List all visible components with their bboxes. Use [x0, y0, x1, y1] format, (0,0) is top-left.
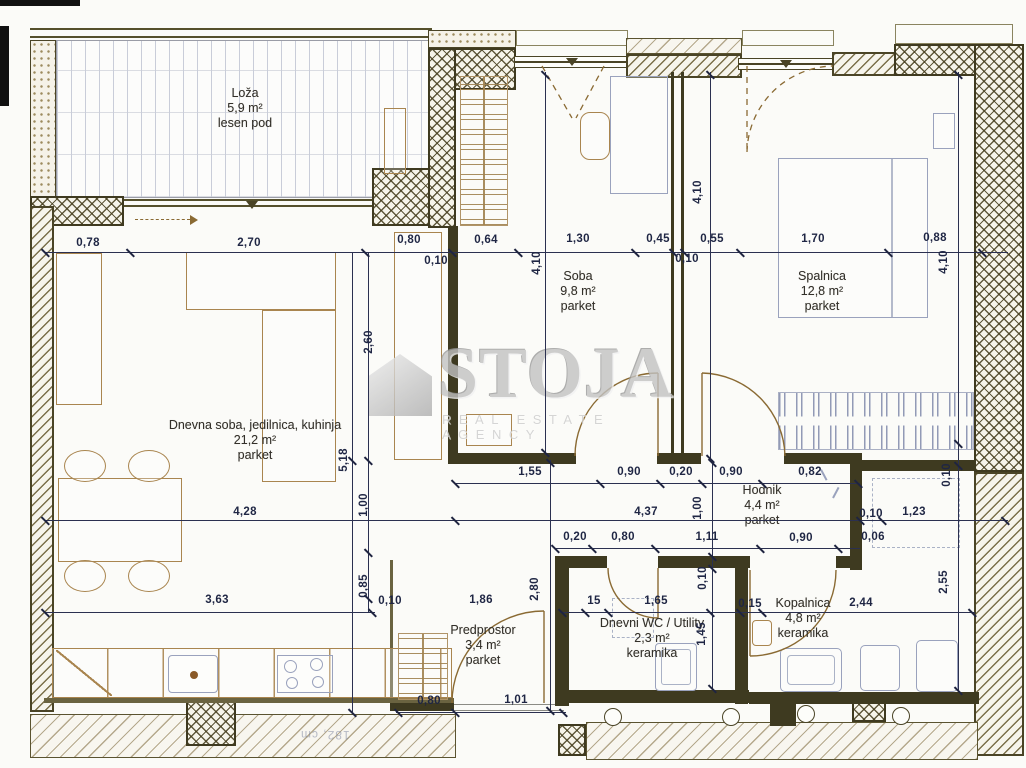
dimension-label: 0,82: [798, 466, 822, 478]
room-floor: parket: [560, 299, 595, 314]
dimension-label: 4,10: [531, 251, 543, 275]
dimension-label: 0,80: [397, 234, 421, 246]
room-floor: keramika: [600, 646, 704, 661]
dimension-label: 4,37: [634, 506, 658, 518]
dimension-label: 0,10: [859, 508, 883, 520]
room-name: Kopalnica: [776, 596, 831, 611]
dimension-line: [352, 252, 353, 712]
dimension-label: 0,06: [861, 531, 885, 543]
room-label-kopalnica: Kopalnica 4,8 m² keramika: [776, 596, 831, 641]
dimension-line: [560, 612, 975, 613]
dimension-label: 0,90: [617, 466, 641, 478]
house-icon: [368, 354, 432, 416]
room-floor: parket: [798, 299, 846, 314]
room-area: 2,3 m²: [600, 631, 704, 646]
dimension-label: 1,23: [902, 506, 926, 518]
room-name: Loža: [218, 86, 272, 101]
dimension-label: 2,55: [938, 570, 950, 594]
watermark-brand: STOJA: [438, 332, 674, 415]
dimension-label: 0,88: [923, 232, 947, 244]
room-name: Spalnica: [798, 269, 846, 284]
dimension-label: 1,11: [696, 531, 719, 543]
room-label-soba: Soba 9,8 m² parket: [560, 269, 595, 314]
room-floor: keramika: [776, 626, 831, 641]
dimension-label: 0,78: [76, 237, 100, 249]
dimension-line: [45, 252, 1008, 253]
watermark-tagline: REAL ESTATE AGENCY: [442, 412, 680, 442]
dimension-line: [45, 612, 375, 613]
balcony-door-swing-spalnica: [747, 66, 833, 152]
dimension-label: 4,10: [692, 180, 704, 204]
dimension-label: 1,86: [469, 594, 493, 606]
room-floor: parket: [450, 653, 515, 668]
dimension-label: 0,55: [700, 233, 724, 245]
dimension-line: [396, 712, 566, 713]
dimension-label: 15: [587, 595, 600, 607]
dimension-label: 3,63: [205, 594, 229, 606]
dimension-label: 1,45: [696, 622, 708, 646]
dimension-line: [550, 460, 551, 712]
room-label-loza: Loža 5,9 m² lesen pod: [218, 86, 272, 131]
dimension-line: [545, 72, 546, 455]
room-area: 12,8 m²: [798, 284, 846, 299]
dimension-label: 0,80: [611, 531, 635, 543]
dimension-label: 5,18: [338, 448, 350, 472]
dimension-label: 4,10: [938, 250, 950, 274]
dimension-label: 0,10: [378, 595, 402, 607]
room-area: 5,9 m²: [218, 101, 272, 116]
dimension-label: 1,65: [644, 595, 668, 607]
dimension-line: [455, 483, 860, 484]
dimension-label: 0,85: [358, 574, 370, 598]
dimension-label: 0,10: [675, 253, 699, 265]
room-name: Dnevni WC / Utility: [600, 616, 704, 631]
floor-plan: STOJA REAL ESTATE AGENCY Loža 5,9 m² les…: [0, 0, 1026, 768]
dimension-label: 1,55: [518, 466, 542, 478]
dimension-label: 0,45: [646, 233, 670, 245]
dimension-label: 1,01: [504, 694, 528, 706]
door-arc-wc: [608, 568, 658, 618]
room-name: Dnevna soba, jedilnica, kuhinja: [169, 418, 341, 433]
dimension-line: [555, 548, 860, 549]
room-floor: lesen pod: [218, 116, 272, 131]
dimension-label: 2,70: [237, 237, 261, 249]
dimension-line: [712, 460, 713, 690]
dimension-line: [710, 72, 711, 460]
room-name: Predprostor: [450, 623, 515, 638]
room-area: 3,4 m²: [450, 638, 515, 653]
room-label-wc: Dnevni WC / Utility 2,3 m² keramika: [600, 616, 704, 661]
dimension-label: 0,80: [417, 695, 441, 707]
room-label-dnevna: Dnevna soba, jedilnica, kuhinja 21,2 m² …: [169, 418, 341, 463]
room-area: 4,4 m²: [743, 498, 782, 513]
agency-watermark: STOJA REAL ESTATE AGENCY: [360, 346, 680, 442]
dimension-label: 0,90: [719, 466, 743, 478]
room-label-predprostor: Predprostor 3,4 m² parket: [450, 623, 515, 668]
dimension-line: [45, 520, 1008, 521]
dimension-label: 2,44: [849, 597, 873, 609]
dimension-label: 0,10: [697, 566, 709, 590]
dimension-line: [958, 72, 959, 692]
room-area: 4,8 m²: [776, 611, 831, 626]
room-label-spalnica: Spalnica 12,8 m² parket: [798, 269, 846, 314]
room-area: 9,8 m²: [560, 284, 595, 299]
scan-bleed-text: 182, cm: [300, 728, 350, 742]
room-area: 21,2 m²: [169, 433, 341, 448]
dimension-label: 0,90: [789, 532, 813, 544]
dimension-label: 2,80: [529, 577, 541, 601]
dimension-line: [368, 252, 369, 612]
door-arc-spalnica: [702, 373, 785, 456]
dimension-label: 0,10: [941, 463, 953, 487]
dimension-label: 2,60: [363, 330, 375, 354]
balcony-door-swing-soba: [576, 66, 604, 118]
dimension-label: 1,30: [566, 233, 590, 245]
dimension-label: 1,00: [692, 496, 704, 520]
dimension-label: 0,64: [474, 234, 498, 246]
dimension-label: 1,70: [801, 233, 825, 245]
dimension-label: 0,20: [669, 466, 693, 478]
room-floor: parket: [169, 448, 341, 463]
room-name: Soba: [560, 269, 595, 284]
dimension-label: 0,20: [563, 531, 587, 543]
dimension-label: 0,15: [738, 598, 762, 610]
dimension-label: 0,10: [424, 255, 448, 267]
room-label-hodnik: Hodnik 4,4 m² parket: [743, 483, 782, 528]
dimension-label: 4,28: [233, 506, 257, 518]
dimension-label: 1,00: [358, 493, 370, 517]
